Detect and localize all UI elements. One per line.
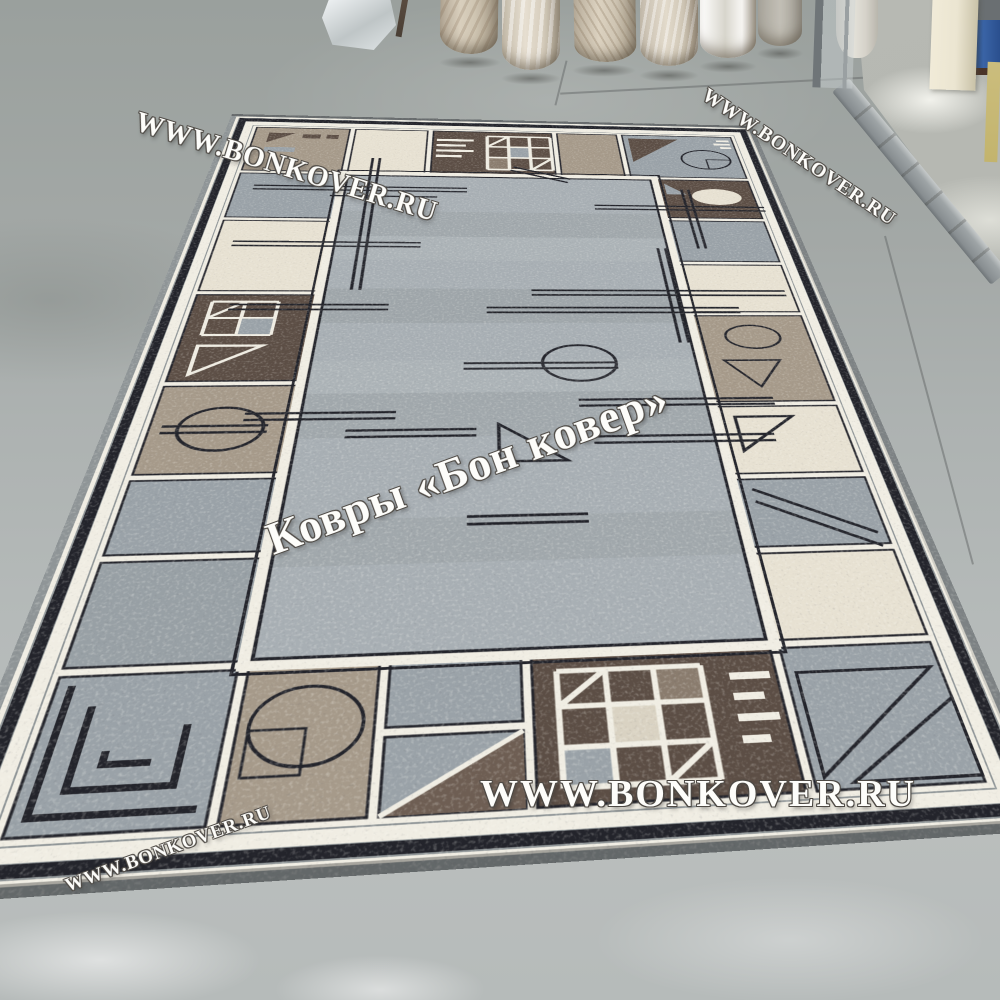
roll-shadow	[698, 60, 758, 73]
carpet-roll	[640, 0, 698, 66]
showroom-photo: WWW.BONKOVER.RU WWW.BONKOVER.RU Ковры «Б…	[0, 0, 1000, 1000]
roll-shadow	[438, 56, 502, 69]
door-post	[929, 0, 978, 91]
roll-shadow	[638, 69, 700, 82]
glass-door-frame	[812, 0, 855, 89]
roll-shadow	[500, 72, 562, 85]
wall-strip	[984, 62, 1000, 162]
watermark-site-url: WWW.BONKOVER.RU	[480, 772, 916, 816]
carpet-roll	[758, 0, 802, 46]
carpet-roll	[700, 0, 756, 58]
carpet-roll	[502, 0, 560, 70]
roll-shadow	[571, 64, 637, 77]
carpet-roll	[573, 0, 636, 63]
roll-shadow	[756, 47, 804, 60]
carpet-roll	[439, 0, 498, 55]
